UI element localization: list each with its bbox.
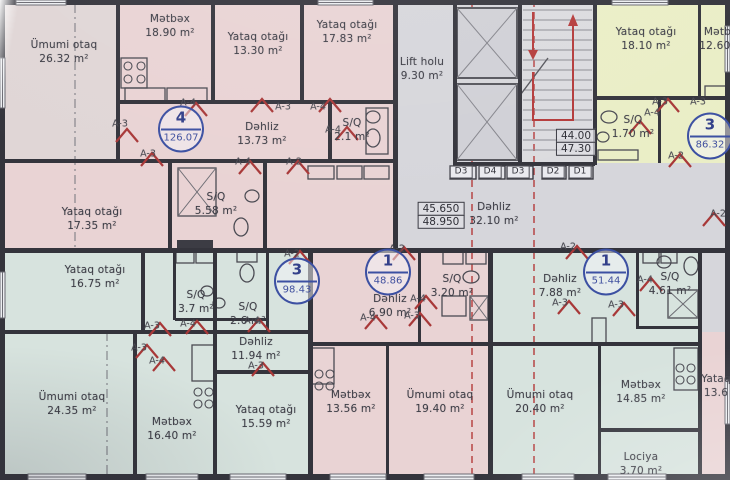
- room-area: 17.35 m²: [62, 219, 123, 233]
- corridor-door-label: D4: [479, 166, 502, 179]
- apartment-number: 3: [276, 260, 318, 281]
- door-tag-label: A-4: [637, 275, 653, 286]
- room-label: Ümumi otaq20.40 m²: [507, 388, 574, 416]
- room-label: Lociya3.70 m²: [620, 450, 663, 478]
- room-label: Yataq otağı13.30 m²: [228, 30, 289, 58]
- room-name: Yataq otağı: [317, 18, 378, 32]
- room-area: 17.83 m²: [317, 32, 378, 46]
- room-name: Yataq otağı: [228, 30, 289, 44]
- room-area: 14.85 m²: [616, 392, 665, 406]
- room-name: Ümumi otaq: [31, 38, 98, 52]
- room-area: 3.7 m²: [178, 302, 214, 316]
- lift-shafts: [457, 8, 517, 160]
- apartment-badge: 151.44: [583, 249, 629, 296]
- room-label: S/Q4.61 m²: [649, 270, 692, 298]
- room-name: Dəhliz: [231, 335, 280, 349]
- door-tag-label: A-4: [149, 356, 165, 367]
- wall-segment: [598, 344, 601, 477]
- room-name: S/Q: [431, 272, 474, 286]
- room-name: S/Q: [178, 288, 214, 302]
- room-label: Ümumi otaq19.40 m²: [407, 388, 474, 416]
- wall-segment: [488, 248, 493, 480]
- room-label: Ümumi otaq26.32 m²: [31, 38, 98, 66]
- room-label: Yataq otağı16.75 m²: [65, 263, 126, 291]
- wall-segment: [141, 248, 145, 332]
- wall-segment: [490, 342, 700, 346]
- room-label: Mətbəx16.40 m²: [147, 415, 196, 443]
- room-label: Mətbəx12.60 m²: [699, 25, 730, 53]
- wall-segment: [168, 160, 172, 250]
- wall-segment: [453, 0, 457, 166]
- room-name: Mətbəx: [616, 378, 665, 392]
- apartment-number: 1: [585, 251, 627, 272]
- room-label: Dəhliz32.10 m²: [469, 200, 518, 228]
- level-elevation-box: 45.65048.950: [418, 203, 465, 229]
- room-area: 12.60 m²: [699, 39, 730, 53]
- room-name: Dəhliz: [237, 120, 286, 134]
- room-label: Dəhliz7.88 m²: [539, 272, 582, 300]
- wall-segment: [518, 0, 522, 166]
- room-name: S/Q: [649, 270, 692, 284]
- apartment-badge: 148.86: [365, 249, 411, 296]
- room-label: Mətbəx18.90 m²: [145, 12, 194, 40]
- room-name: Dəhliz: [539, 272, 582, 286]
- room-name: Lift holu: [400, 55, 444, 69]
- wall-segment: [600, 428, 700, 432]
- room-name: S/Q: [195, 190, 238, 204]
- level-elevation-box: 44.0047.30: [556, 130, 596, 156]
- room-area: 13.73 m²: [237, 134, 286, 148]
- door-tag-label: A-3: [275, 102, 291, 113]
- door-tag-label: A-3: [144, 321, 160, 332]
- corridor-door-label: D1: [569, 166, 592, 179]
- corridor-door-label: D3: [450, 166, 473, 179]
- door-tag-label: A-3: [404, 311, 420, 322]
- room-label: S/Q3.20 m²: [431, 272, 474, 300]
- room-name: S/Q: [230, 300, 266, 314]
- wall-segment: [211, 0, 215, 102]
- wall-segment: [393, 0, 398, 250]
- door-tag-label: A-3: [652, 97, 668, 108]
- room-area: 19.40 m²: [407, 402, 474, 416]
- door-tag-label: A-4: [235, 157, 251, 168]
- room-fill: [5, 0, 118, 160]
- room-name: Mətbəx: [145, 12, 194, 26]
- room-name: Mətbəx: [699, 25, 730, 39]
- door-tag-label: A-4: [180, 319, 196, 330]
- apartment-total-area: 48.86: [368, 272, 408, 289]
- apartment-total-area: 51.44: [586, 272, 626, 289]
- room-area: 20.40 m²: [507, 402, 574, 416]
- room-name: Yataq: [701, 372, 730, 386]
- door-tag-label: A-2: [710, 209, 726, 220]
- corridor-door-label: D3: [507, 166, 530, 179]
- room-label: S/Q3.7 m²: [178, 288, 214, 316]
- room-area: 13.6: [701, 386, 730, 400]
- elevation-upper: 44.00: [556, 129, 596, 144]
- door-tag-label: A-3: [552, 298, 568, 309]
- room-area: 16.75 m²: [65, 277, 126, 291]
- room-area: 9.30 m²: [400, 69, 444, 83]
- room-name: Yataq otağı: [65, 263, 126, 277]
- door-tag-label: A-2: [560, 242, 576, 253]
- room-label: Yataq otağı18.10 m²: [616, 25, 677, 53]
- door-tag-label: A-4: [644, 108, 660, 119]
- door-tag-label: A-4: [360, 313, 376, 324]
- door-tag-label: A-3: [248, 361, 264, 372]
- door-tag-label: A-4: [244, 316, 260, 327]
- room-area: 3.20 m²: [431, 286, 474, 300]
- apartment-number: 3: [689, 115, 730, 136]
- room-name: Ümumi otaq: [407, 388, 474, 402]
- room-label: Dəhliz11.94 m²: [231, 335, 280, 363]
- room-area: 4.61 m²: [649, 284, 692, 298]
- apartment-badge: 386.32: [687, 113, 730, 160]
- room-name: Mətbəx: [147, 415, 196, 429]
- room-area: 16.40 m²: [147, 429, 196, 443]
- door-tag-label: A-4: [310, 102, 326, 113]
- door-tag-label: A-3: [140, 149, 156, 160]
- room-name: Mətbəx: [326, 388, 375, 402]
- room-area: 15.59 m²: [236, 417, 297, 431]
- room-label: Mətbəx13.56 m²: [326, 388, 375, 416]
- room-name: Yataq otağı: [62, 205, 123, 219]
- wall-segment: [310, 342, 490, 346]
- room-name: Yataq otağı: [616, 25, 677, 39]
- door-tag-label: A-4: [410, 294, 426, 305]
- room-name: Dəhliz: [469, 200, 518, 214]
- room-area: 18.90 m²: [145, 26, 194, 40]
- door-tag-label: A-3: [690, 97, 706, 108]
- wall-segment: [133, 332, 137, 477]
- apartment-total-area: 98.43: [277, 281, 317, 298]
- elevation-upper: 45.650: [418, 202, 465, 217]
- wall-segment: [173, 250, 176, 320]
- wall-segment: [698, 248, 702, 480]
- apartment-total-area: 126.07: [161, 129, 201, 146]
- room-label: S/Q5.58 m²: [195, 190, 238, 218]
- apartment-number: 1: [367, 251, 409, 272]
- room-label: Lift holu9.30 m²: [400, 55, 444, 83]
- fixture-counter-dark: [177, 240, 213, 249]
- room-area: 26.32 m²: [31, 52, 98, 66]
- room-label: Yataq otağı17.83 m²: [317, 18, 378, 46]
- room-name: Ümumi otaq: [507, 388, 574, 402]
- room-area: 32.10 m²: [469, 214, 518, 228]
- wall-segment: [0, 159, 395, 163]
- elevation-lower: 47.30: [556, 142, 596, 157]
- door-tag-label: A-3: [131, 343, 147, 354]
- room-area: 1.70 m²: [612, 127, 655, 141]
- wall-segment: [300, 0, 304, 102]
- wall-segment: [263, 160, 267, 250]
- wall-segment: [213, 332, 217, 477]
- room-label: Ümumi otaq24.35 m²: [39, 390, 106, 418]
- apartment-badge: 4126.07: [158, 106, 204, 153]
- room-name: Yataq otağı: [236, 403, 297, 417]
- room-label: Mətbəx14.85 m²: [616, 378, 665, 406]
- floor-plan-scan: Ümumi otaq26.32 m²Mətbəx18.90 m²Yataq ot…: [0, 0, 730, 480]
- room-name: Ümumi otaq: [39, 390, 106, 404]
- door-tag-label: A-2: [668, 151, 684, 162]
- room-name: Lociya: [620, 450, 663, 464]
- room-area: 3.70 m²: [620, 464, 663, 478]
- door-tag-label: A-3: [608, 300, 624, 311]
- door-tag-label: A-2: [286, 157, 302, 168]
- apartment-badge: 398.43: [274, 258, 320, 305]
- room-area: 13.56 m²: [326, 402, 375, 416]
- wall-segment: [636, 248, 639, 328]
- wall-segment: [636, 326, 700, 329]
- room-area: 13.30 m²: [228, 44, 289, 58]
- room-label: Dəhliz13.73 m²: [237, 120, 286, 148]
- wall-segment: [386, 344, 389, 477]
- room-label: Yataq otağı15.59 m²: [236, 403, 297, 431]
- apartment-number: 4: [160, 108, 202, 129]
- room-label: Yataq13.6: [701, 372, 730, 400]
- room-area: 5.58 m²: [195, 204, 238, 218]
- corridor-door-label: D2: [542, 166, 565, 179]
- door-tag-label: A-3: [112, 119, 128, 130]
- elevation-lower: 48.950: [418, 215, 465, 230]
- wall-segment: [118, 100, 395, 104]
- apartment-total-area: 86.32: [690, 136, 730, 153]
- room-area: 24.35 m²: [39, 404, 106, 418]
- room-label: Yataq otağı17.35 m²: [62, 205, 123, 233]
- door-tag-label: A-4: [325, 125, 341, 136]
- room-area: 18.10 m²: [616, 39, 677, 53]
